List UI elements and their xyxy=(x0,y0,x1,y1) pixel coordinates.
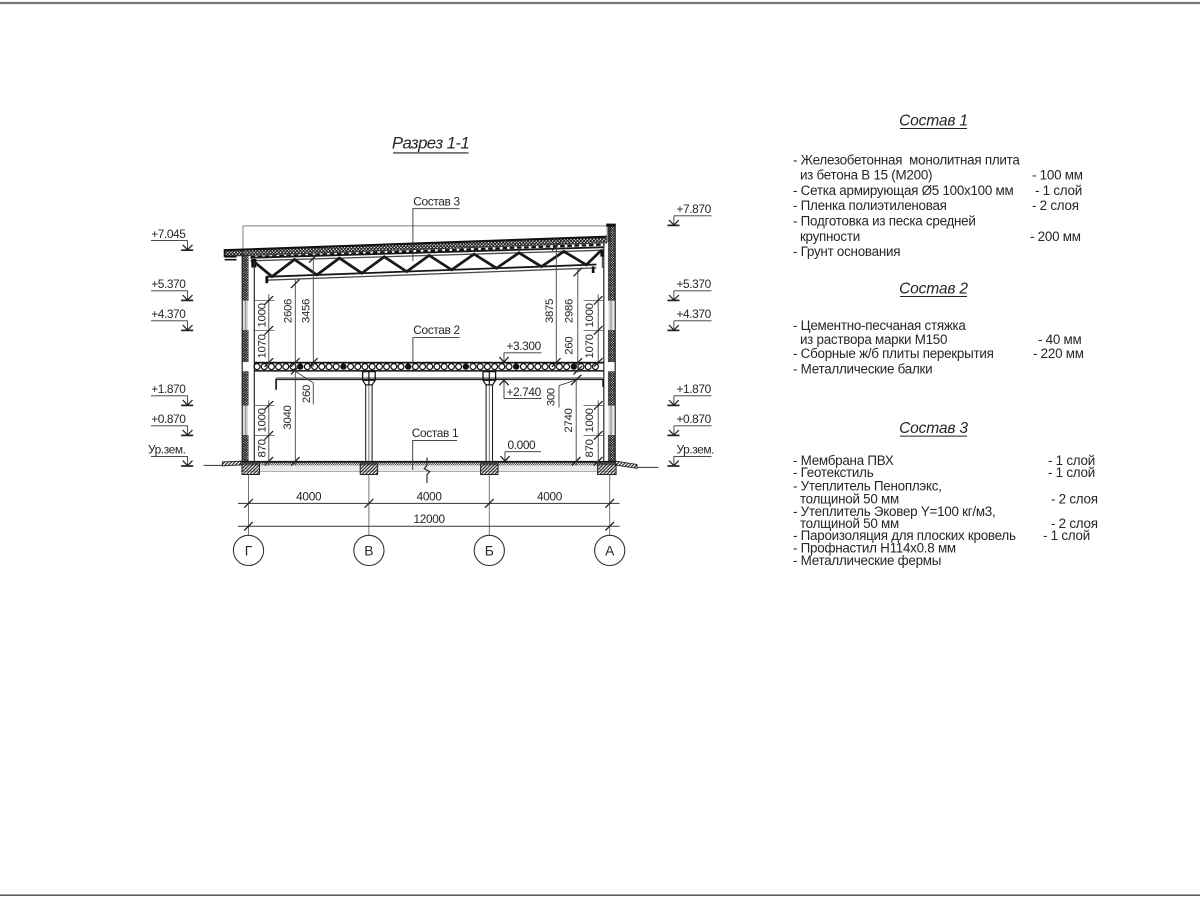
svg-text:870: 870 xyxy=(256,439,268,457)
svg-text:- Пленка полиэтиленовая: - Пленка полиэтиленовая xyxy=(793,198,947,213)
svg-text:+4.370: +4.370 xyxy=(151,307,186,321)
svg-text:- 1 слой: - 1 слой xyxy=(1043,528,1090,543)
svg-text:+4.370: +4.370 xyxy=(677,307,712,321)
svg-text:12000: 12000 xyxy=(413,512,445,526)
svg-text:- 2 слоя: - 2 слоя xyxy=(1051,491,1098,506)
svg-text:Состав 2: Состав 2 xyxy=(899,280,968,297)
svg-text:2986: 2986 xyxy=(563,299,575,323)
svg-text:3456: 3456 xyxy=(301,299,313,323)
svg-text:2606: 2606 xyxy=(283,299,295,323)
svg-text:- Железобетонная монолитная п: - Железобетонная монолитная плита xyxy=(793,152,1020,167)
svg-text:1000: 1000 xyxy=(584,408,596,432)
svg-text:260: 260 xyxy=(301,385,313,403)
svg-text:А: А xyxy=(605,543,615,558)
svg-text:Состав 3: Состав 3 xyxy=(413,194,460,208)
svg-text:3040: 3040 xyxy=(282,405,294,429)
svg-text:- Цементно-песчаная стяжка: - Цементно-песчаная стяжка xyxy=(793,318,966,333)
svg-text:- 40 мм: - 40 мм xyxy=(1038,332,1082,347)
svg-text:- 200 мм: - 200 мм xyxy=(1030,229,1081,244)
svg-text:Ур.зем.: Ур.зем. xyxy=(677,443,715,457)
svg-text:300: 300 xyxy=(546,388,558,406)
svg-text:+5.370: +5.370 xyxy=(677,277,712,291)
svg-text:+0.870: +0.870 xyxy=(151,412,186,426)
svg-text:- 1 слой: - 1 слой xyxy=(1035,183,1082,198)
svg-text:260: 260 xyxy=(564,337,576,355)
svg-text:3875: 3875 xyxy=(544,299,556,323)
svg-text:4000: 4000 xyxy=(417,489,443,503)
svg-text:2740: 2740 xyxy=(563,408,575,432)
svg-text:4000: 4000 xyxy=(296,489,322,503)
svg-text:+7.870: +7.870 xyxy=(677,202,712,216)
svg-text:+3.300: +3.300 xyxy=(507,339,542,353)
svg-text:+5.370: +5.370 xyxy=(151,277,186,291)
svg-text:1000: 1000 xyxy=(256,303,268,327)
svg-text:+0.870: +0.870 xyxy=(677,412,712,426)
svg-text:из раствора марки М150: из раствора марки М150 xyxy=(793,332,947,347)
svg-text:1070: 1070 xyxy=(584,334,596,358)
svg-text:- Подготовка из песка средней: - Подготовка из песка средней xyxy=(793,214,976,229)
svg-text:870: 870 xyxy=(584,439,596,457)
svg-text:- 100 мм: - 100 мм xyxy=(1032,168,1083,183)
svg-text:+2.740: +2.740 xyxy=(507,385,542,399)
svg-text:Состав 3: Состав 3 xyxy=(899,420,968,437)
svg-text:- Сборные ж/б плиты перекрытия: - Сборные ж/б плиты перекрытия xyxy=(793,346,994,361)
svg-text:+7.045: +7.045 xyxy=(151,227,186,241)
svg-text:Ур.зем.: Ур.зем. xyxy=(148,443,186,457)
svg-text:Разрез 1-1: Разрез 1-1 xyxy=(392,134,469,153)
svg-text:Б: Б xyxy=(485,543,494,558)
svg-text:Состав 2: Состав 2 xyxy=(413,323,460,337)
svg-text:1000: 1000 xyxy=(584,303,596,327)
svg-text:- Сетка армирующая Ø5 100х100: - Сетка армирующая Ø5 100х100 мм xyxy=(793,183,1013,198)
svg-text:из бетона В 15 (М200): из бетона В 15 (М200) xyxy=(793,168,932,183)
svg-text:- Грунт основания: - Грунт основания xyxy=(793,244,900,259)
svg-text:- 1 слой: - 1 слой xyxy=(1048,465,1095,480)
svg-text:- 2 слоя: - 2 слоя xyxy=(1032,198,1079,213)
svg-text:- 220 мм: - 220 мм xyxy=(1033,346,1084,361)
svg-text:- Металлические фермы: - Металлические фермы xyxy=(793,553,941,568)
svg-text:В: В xyxy=(364,543,373,558)
svg-text:+1.870: +1.870 xyxy=(151,382,186,396)
svg-text:Состав 1: Состав 1 xyxy=(412,426,459,440)
svg-text:1070: 1070 xyxy=(256,334,268,358)
svg-text:крупности: крупности xyxy=(793,229,860,244)
svg-text:Г: Г xyxy=(245,543,253,558)
svg-text:Состав 1: Состав 1 xyxy=(899,112,968,129)
svg-text:1000: 1000 xyxy=(256,408,268,432)
svg-text:+1.870: +1.870 xyxy=(677,382,712,396)
svg-text:- Металлические балки: - Металлические балки xyxy=(793,361,932,376)
svg-text:0.000: 0.000 xyxy=(508,438,537,452)
svg-text:4000: 4000 xyxy=(537,489,563,503)
